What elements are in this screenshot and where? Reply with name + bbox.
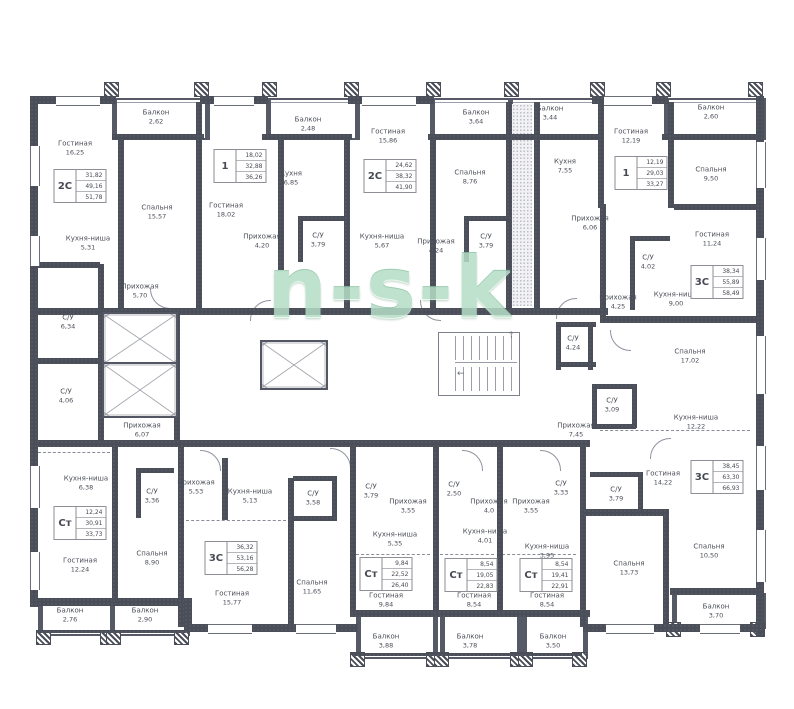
room-label: Кухня-ниша5,31	[66, 235, 110, 252]
room-label: Кухня6,85	[280, 170, 302, 187]
room-name: Балкон	[295, 116, 322, 125]
room-label: Балкон2,76	[57, 607, 84, 624]
room-area: 3,55	[389, 506, 427, 514]
hatch-mark	[262, 82, 277, 97]
hatch-mark	[656, 82, 671, 97]
room-area: 15,86	[371, 136, 405, 144]
unit-values: 31,8249,1651,78	[77, 170, 106, 202]
room-label: Балкон3,78	[457, 633, 484, 650]
room-label: Гостиная9,84	[369, 592, 403, 609]
room-name: Спальня	[695, 166, 726, 175]
room-label: Спальня8,90	[136, 550, 167, 567]
room-label: Балкон3,70	[703, 603, 730, 620]
unit-area-value: 22,91	[543, 581, 572, 591]
wall-segment	[464, 216, 511, 221]
room-name: Балкон	[698, 104, 725, 113]
room-name: Гостиная	[530, 592, 564, 601]
room-area: 3,88	[373, 641, 400, 649]
wall-segment	[592, 384, 636, 389]
wall-segment	[36, 440, 590, 447]
hatch-mark	[104, 82, 119, 97]
room-area: 6,85	[280, 178, 302, 186]
room-area: 8,54	[530, 600, 564, 608]
room-name: Гостиная	[63, 557, 97, 566]
room-label: С/У3,79	[609, 486, 623, 503]
room-label: Гостиная16,25	[58, 140, 92, 157]
unit-area-value: 36,26	[237, 172, 266, 182]
wall-segment	[663, 511, 669, 626]
elevator-shaft	[104, 314, 176, 364]
room-name: Спальня	[296, 579, 327, 588]
floor-plan-page: ↑←Гостиная16,25Кухня-ниша5,31Спальня15,5…	[0, 0, 794, 709]
room-name: Прихожая	[177, 479, 215, 488]
room-area: 4,25	[599, 302, 637, 310]
room-label: С/У3,58	[306, 490, 320, 507]
unit-type-badge: 2С	[55, 170, 77, 202]
room-name: Гостиная	[695, 231, 729, 240]
room-area: 4,24	[566, 343, 580, 351]
room-area: 12,22	[674, 422, 718, 430]
room-name: Прихожая	[470, 498, 508, 507]
room-area: 9,84	[369, 600, 403, 608]
room-area: 7,45	[557, 430, 595, 438]
room-label: Балкон3,44	[537, 105, 564, 122]
room-area: 6,34	[61, 322, 75, 330]
room-name: Прихожая	[123, 422, 161, 431]
room-name: С/У	[364, 483, 378, 492]
room-name: Балкон	[57, 607, 84, 616]
wall-segment	[196, 102, 202, 312]
room-name: С/У	[554, 480, 568, 489]
window	[56, 96, 100, 106]
wall-segment	[136, 468, 141, 518]
unit-type-badge: Ст	[361, 558, 383, 590]
room-name: С/У	[641, 254, 655, 263]
unit-area-table: Ст8,5419,4122,91	[520, 558, 573, 592]
door-arc	[330, 448, 351, 469]
room-area: 12,19	[614, 136, 648, 144]
unit-area-value: 9,84	[383, 558, 412, 569]
room-label: Спальня17,02	[674, 348, 705, 365]
room-name: С/У	[61, 314, 75, 323]
room-label: Балкон2,48	[295, 116, 322, 133]
room-area: 17,02	[674, 356, 705, 364]
window	[214, 96, 254, 106]
room-label: Кухня-ниша5,35	[373, 531, 417, 548]
room-label: Гостиная11,24	[695, 231, 729, 248]
room-name: Кухня	[280, 170, 302, 179]
room-area: 9,50	[695, 174, 726, 182]
window	[756, 238, 766, 280]
unit-area-value: 33,73	[77, 529, 106, 539]
window	[606, 624, 654, 634]
room-area: 5,53	[177, 487, 215, 495]
room-label: Балкон2,90	[132, 607, 159, 624]
room-label: Балкон3,64	[463, 109, 490, 126]
unit-area-value: 53,16	[228, 553, 257, 564]
wall-segment	[293, 476, 337, 481]
room-area: 2,90	[132, 615, 159, 623]
room-label: Гостиная8,54	[530, 592, 564, 609]
unit-type-badge: Ст	[446, 559, 468, 591]
room-label: Спальня8,76	[454, 169, 485, 186]
room-label: С/У3,09	[605, 397, 619, 414]
room-name: С/У	[605, 397, 619, 406]
room-area: 6,38	[64, 483, 108, 491]
wall-segment	[332, 476, 337, 520]
room-name: Прихожая	[557, 422, 595, 431]
unit-area-table: Ст8,5419,0522,83	[445, 558, 498, 592]
room-label: Спальня9,50	[695, 166, 726, 183]
wall-segment	[350, 610, 590, 617]
room-area: 15,57	[141, 212, 172, 220]
room-area: 3,79	[364, 491, 378, 499]
unit-area-value: 38,32	[387, 171, 416, 182]
room-name: Гостиная	[646, 470, 680, 479]
wall-segment	[298, 216, 344, 221]
wall-segment	[433, 447, 439, 614]
room-area: 2,62	[143, 117, 170, 125]
room-area: 5,70	[121, 291, 159, 299]
unit-area-value: 56,28	[228, 564, 257, 574]
room-name: Кухня-ниша	[228, 488, 272, 497]
room-label: Балкон3,88	[373, 633, 400, 650]
window	[208, 624, 252, 634]
room-label: Гостиная15,86	[371, 128, 405, 145]
room-area: 2,48	[295, 124, 322, 132]
room-label: Прихожая6,06	[571, 215, 609, 232]
room-name: Балкон	[143, 109, 170, 118]
room-name: Спальня	[136, 550, 167, 559]
room-area: 6,06	[571, 223, 609, 231]
room-name: Балкон	[537, 105, 564, 114]
room-label: Спальня11,65	[296, 579, 327, 596]
unit-type-badge: 3С	[206, 542, 228, 574]
unit-type-badge: Ст	[521, 559, 543, 591]
unit-values: 8,5419,4122,91	[543, 559, 572, 591]
unit-area-value: 19,05	[468, 570, 497, 581]
room-label: Балкон3,50	[540, 633, 567, 650]
unit-area-value: 8,54	[468, 559, 497, 570]
wall-segment	[262, 134, 352, 140]
hatch-mark	[194, 82, 209, 97]
elevator-shaft	[104, 364, 176, 416]
room-name: Спальня	[674, 348, 705, 357]
room-label: Спальня10,50	[693, 543, 724, 560]
wall-segment	[30, 598, 188, 606]
room-name: Спальня	[141, 204, 172, 213]
room-label: Гостиная18,02	[209, 202, 243, 219]
room-area: 3,33	[554, 488, 568, 496]
window	[756, 530, 766, 582]
room-area: 2,50	[447, 489, 461, 497]
wall-segment	[598, 102, 604, 208]
room-area: 3,09	[605, 405, 619, 413]
room-name: Гостиная	[209, 202, 243, 211]
wall-segment	[112, 134, 204, 140]
room-area: 4,0	[470, 506, 508, 514]
room-area: 5,31	[66, 243, 110, 251]
room-name: Балкон	[463, 109, 490, 118]
unit-area-value: 12,24	[77, 507, 106, 518]
room-name: Гостиная	[369, 592, 403, 601]
room-label: Кухня-ниша3,95	[525, 543, 569, 560]
room-label: Спальня15,57	[141, 204, 172, 221]
stair-landing-line	[455, 362, 517, 363]
room-label: Гостиная12,24	[63, 557, 97, 574]
unit-type-badge: 1	[215, 150, 237, 182]
wall-segment	[136, 468, 174, 473]
room-name: Кухня-ниша	[463, 528, 507, 537]
wall-segment	[36, 358, 100, 364]
room-area: 3,58	[306, 498, 320, 506]
room-area: 3,36	[145, 496, 159, 504]
room-label: Прихожая7,45	[557, 422, 595, 439]
room-label: С/У4,24	[566, 335, 580, 352]
room-name: Гостиная	[371, 128, 405, 137]
unit-area-value: 38,45	[714, 461, 743, 472]
room-area: 3,70	[703, 611, 730, 619]
room-name: С/У	[306, 490, 320, 499]
window	[30, 236, 40, 266]
room-name: С/У	[59, 388, 73, 397]
unit-area-value: 66,93	[714, 483, 743, 493]
room-area: 11,65	[296, 587, 327, 595]
unit-values: 18,0232,8836,26	[237, 150, 266, 182]
room-area: 10,50	[693, 551, 724, 559]
elevator-shaft	[262, 342, 326, 388]
hatch-mark	[748, 82, 763, 97]
room-area: 3,55	[512, 506, 550, 514]
kitchen-niche-dashed-line	[356, 554, 430, 555]
room-area: 14,22	[646, 478, 680, 486]
room-name: Кухня-ниша	[373, 531, 417, 540]
room-name: Кухня-ниша	[674, 414, 718, 423]
unit-area-value: 22,52	[383, 569, 412, 580]
room-area: 2,76	[57, 615, 84, 623]
window	[296, 624, 336, 634]
room-name: Кухня-ниша	[525, 543, 569, 552]
unit-type-badge: 3С	[692, 266, 714, 298]
room-name: Балкон	[540, 633, 567, 642]
unit-area-value: 63,30	[714, 472, 743, 483]
door-arc	[200, 450, 221, 471]
room-label: Прихожая5,53	[177, 479, 215, 496]
room-name: С/У	[447, 481, 461, 490]
unit-area-value: 41,90	[387, 182, 416, 192]
room-area: 9,00	[654, 299, 698, 307]
room-name: Балкон	[373, 633, 400, 642]
room-area: 8,76	[454, 177, 485, 185]
unit-area-value: 33,27	[638, 179, 667, 189]
room-label: Гостиная14,22	[646, 470, 680, 487]
room-name: С/У	[145, 488, 159, 497]
room-area: 2,60	[698, 112, 725, 120]
room-label: Балкон2,62	[143, 109, 170, 126]
room-name: Балкон	[457, 633, 484, 642]
room-name: Балкон	[132, 607, 159, 616]
wall-segment	[534, 102, 540, 312]
room-label: Кухня-ниша12,22	[674, 414, 718, 431]
room-label: Кухня-ниша6,38	[64, 475, 108, 492]
room-name: Прихожая	[512, 498, 550, 507]
wall-segment	[288, 478, 294, 626]
room-label: Гостиная8,54	[457, 592, 491, 609]
unit-area-value: 12,19	[638, 157, 667, 168]
unit-area-table: 3С38,4563,3066,93	[691, 460, 744, 494]
unit-values: 12,2430,9133,73	[77, 507, 106, 539]
wall-segment	[662, 134, 758, 140]
room-name: Прихожая	[121, 283, 159, 292]
wall-segment	[600, 316, 760, 323]
door-arc	[610, 330, 631, 351]
kitchen-niche-dashed-line	[440, 554, 494, 555]
room-name: Спальня	[454, 169, 485, 178]
room-name: Прихожая	[389, 498, 427, 507]
watermark: n-s-k	[267, 239, 512, 337]
wall-segment	[592, 424, 636, 429]
room-area: 6,07	[123, 430, 161, 438]
room-area: 8,90	[136, 558, 167, 566]
kitchen-niche-dashed-line	[186, 520, 286, 521]
room-area: 3,44	[537, 113, 564, 121]
room-label: С/У3,36	[145, 488, 159, 505]
wall-segment	[588, 322, 593, 370]
room-name: Гостиная	[457, 592, 491, 601]
room-label: С/У4,02	[641, 254, 655, 271]
room-label: Кухня-ниша4,01	[463, 528, 507, 545]
window	[30, 146, 40, 186]
unit-area-value: 24,62	[387, 160, 416, 171]
unit-values: 36,3253,1656,28	[228, 542, 257, 574]
room-label: Прихожая5,70	[121, 283, 159, 300]
unit-type-badge: 2С	[365, 160, 387, 192]
window	[362, 96, 416, 106]
unit-area-value: 19,41	[543, 570, 572, 581]
room-area: 4,01	[463, 536, 507, 544]
room-label: С/У3,79	[364, 483, 378, 500]
room-label: Прихожая6,07	[123, 422, 161, 439]
room-area: 3,64	[463, 117, 490, 125]
unit-values: 24,6238,3241,90	[387, 160, 416, 192]
wall-segment	[36, 630, 186, 633]
hatch-mark	[426, 82, 441, 97]
room-area: 4,02	[641, 262, 655, 270]
unit-area-value: 36,32	[228, 542, 257, 553]
unit-type-badge: 1	[616, 157, 638, 189]
unit-values: 8,5419,0522,83	[468, 559, 497, 591]
window	[756, 142, 766, 188]
hatch-mark	[344, 82, 359, 97]
window	[756, 446, 766, 490]
wall-segment	[178, 447, 184, 627]
unit-values: 12,1929,0333,27	[638, 157, 667, 189]
room-area: 5,35	[373, 539, 417, 547]
room-name: С/У	[609, 486, 623, 495]
room-label: Гостиная15,77	[215, 590, 249, 607]
room-label: С/У3,33	[554, 480, 568, 497]
window	[30, 466, 40, 508]
unit-area-table: 118,0232,8836,26	[214, 149, 267, 183]
stair-arrow-left-icon: ←	[457, 369, 465, 379]
unit-values: 9,8422,5226,40	[383, 558, 412, 590]
room-label: Спальня13,73	[613, 560, 644, 577]
unit-area-value: 22,83	[468, 581, 497, 591]
wall-segment	[352, 653, 582, 656]
room-name: Кухня-ниша	[64, 475, 108, 484]
unit-area-table: 112,1929,0333,27	[615, 156, 668, 190]
unit-area-table: 2С24,6238,3241,90	[364, 159, 417, 193]
unit-area-value: 18,02	[237, 150, 266, 161]
wall-segment	[668, 102, 674, 208]
room-area: 8,54	[457, 600, 491, 608]
room-area: 12,24	[63, 565, 97, 573]
wall-segment	[670, 588, 762, 595]
window	[756, 336, 766, 394]
room-name: Балкон	[703, 603, 730, 612]
room-label: Кухня-ниша5,13	[228, 488, 272, 505]
room-area: 15,77	[215, 598, 249, 606]
door-arc	[650, 438, 671, 459]
room-label: С/У4,06	[59, 388, 73, 405]
room-name: Кухня	[554, 158, 576, 167]
unit-area-table: Ст9,8422,5226,40	[360, 557, 413, 591]
room-area: 3,50	[540, 641, 567, 649]
room-area: 5,13	[228, 496, 272, 504]
wall-segment	[638, 472, 643, 514]
room-area: 16,25	[58, 148, 92, 156]
unit-values: 38,3455,8958,49	[714, 266, 743, 298]
hatch-mark	[504, 82, 519, 97]
unit-area-table: 2С31,8249,1651,78	[54, 169, 107, 203]
room-name: Прихожая	[599, 294, 637, 303]
wall-segment	[674, 204, 756, 210]
unit-area-value: 8,54	[543, 559, 572, 570]
room-name: Гостиная	[215, 590, 249, 599]
wall-segment	[590, 472, 642, 477]
hatch-mark	[590, 82, 605, 97]
room-area: 4,06	[59, 396, 73, 404]
room-area: 11,24	[695, 239, 729, 247]
room-area: 18,02	[209, 210, 243, 218]
room-name: Гостиная	[58, 140, 92, 149]
room-area: 7,55	[554, 166, 576, 174]
room-label: Кухня7,55	[554, 158, 576, 175]
window	[30, 552, 40, 590]
room-name: С/У	[566, 335, 580, 344]
wall-segment	[583, 509, 669, 516]
room-label: С/У6,34	[61, 314, 75, 331]
room-name: Прихожая	[571, 215, 609, 224]
wall-segment	[630, 236, 670, 241]
unit-type-badge: 3С	[692, 461, 714, 493]
unit-area-value: 51,78	[77, 192, 106, 202]
unit-area-value: 30,91	[77, 518, 106, 529]
room-label: Гостиная12,19	[614, 128, 648, 145]
room-name: Спальня	[613, 560, 644, 569]
wall-segment	[580, 440, 586, 627]
unit-type-badge: Ст	[55, 507, 77, 539]
room-label: Балкон2,60	[698, 104, 725, 121]
unit-area-value: 32,88	[237, 161, 266, 172]
room-name: Гостиная	[614, 128, 648, 137]
unit-area-table: Ст12,2430,9133,73	[54, 506, 107, 540]
unit-area-value: 29,03	[638, 168, 667, 179]
room-label: Прихожая3,55	[389, 498, 427, 515]
unit-area-value: 58,49	[714, 288, 743, 298]
window	[700, 624, 740, 634]
wall-segment	[36, 262, 100, 268]
